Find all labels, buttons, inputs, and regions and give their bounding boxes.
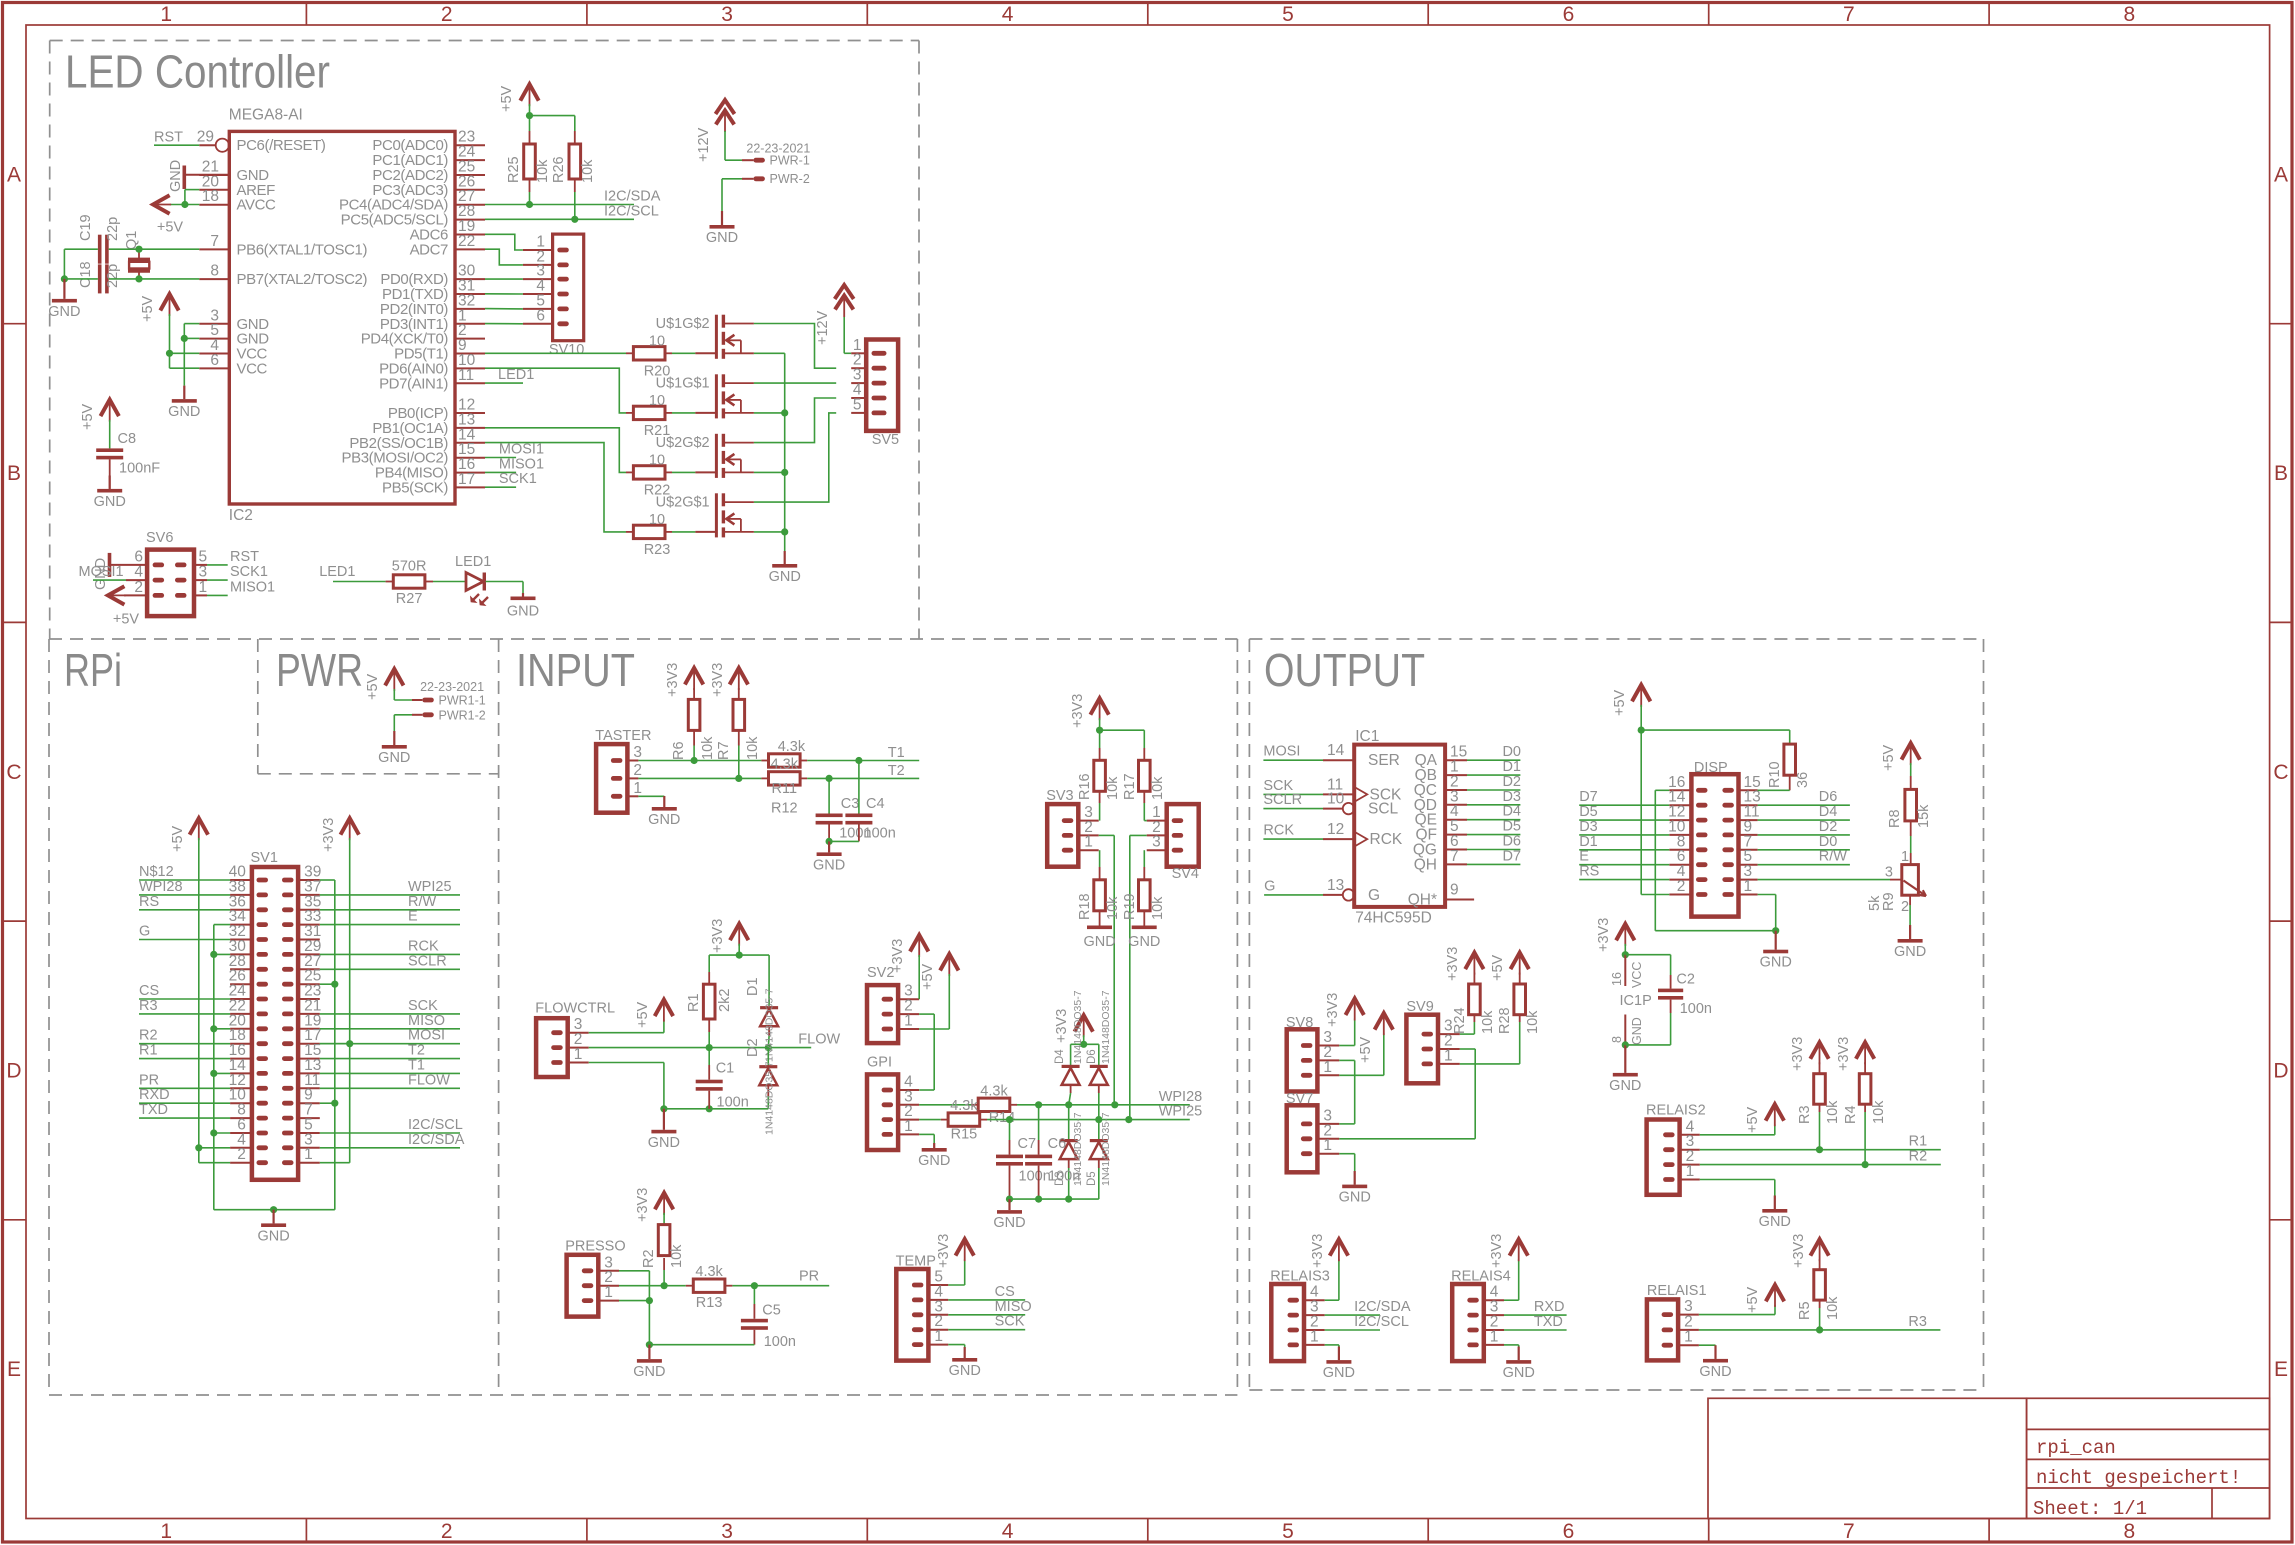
svg-text:1: 1 [160,3,172,26]
svg-text:MISO1: MISO1 [230,580,275,596]
svg-text:+5V: +5V [1490,954,1506,981]
svg-text:E: E [7,1358,21,1381]
svg-text:4.3k: 4.3k [778,739,806,755]
svg-text:GND: GND [648,1135,680,1151]
svg-text:C19: C19 [78,214,94,241]
svg-text:+5V: +5V [80,403,96,430]
svg-text:PB6(XTAL1/TOSC1): PB6(XTAL1/TOSC1) [237,241,368,258]
svg-text:1: 1 [1684,1329,1693,1346]
svg-text:R18: R18 [1077,893,1093,920]
svg-text:11: 11 [458,367,474,384]
svg-text:I2C/SDA: I2C/SDA [408,1132,465,1148]
svg-text:R25: R25 [506,156,522,183]
svg-text:12: 12 [1327,821,1344,838]
svg-text:14: 14 [1327,742,1345,759]
svg-text:+3V3: +3V3 [1054,1009,1070,1043]
svg-text:10k: 10k [1825,1296,1841,1320]
svg-text:SCK1: SCK1 [499,471,537,487]
svg-text:22p: 22p [105,264,121,288]
svg-text:GND: GND [507,604,539,620]
svg-text:R2: R2 [1909,1149,1928,1165]
svg-text:G: G [1264,878,1275,894]
svg-text:SV1: SV1 [251,850,278,866]
svg-text:R1: R1 [686,993,702,1012]
svg-text:+3V3: +3V3 [1325,993,1341,1027]
svg-text:SCK1: SCK1 [230,564,268,580]
svg-text:SV7: SV7 [1286,1091,1313,1107]
svg-text:G: G [139,924,150,940]
svg-text:PWR1-1: PWR1-1 [439,694,486,708]
svg-text:FLOW: FLOW [408,1072,450,1088]
svg-text:Q1: Q1 [124,231,140,250]
svg-text:1: 1 [1310,1328,1319,1345]
svg-text:SV9: SV9 [1406,999,1433,1015]
svg-text:R12: R12 [771,800,798,816]
svg-text:R3: R3 [1908,1314,1927,1330]
svg-text:+5V: +5V [920,963,936,990]
svg-text:22-23-2021: 22-23-2021 [420,680,484,694]
svg-text:2: 2 [633,762,642,779]
svg-text:10k: 10k [669,1244,685,1268]
svg-text:GND: GND [257,1228,289,1244]
svg-text:RPi: RPi [64,644,122,696]
svg-text:10: 10 [649,393,665,409]
svg-text:1N4148DO35-7: 1N4148DO35-7 [1100,1112,1112,1186]
svg-text:10: 10 [649,512,665,528]
svg-text:2: 2 [441,1520,453,1543]
svg-text:10: 10 [649,334,665,350]
svg-text:100n: 100n [864,825,896,841]
svg-text:+5V: +5V [1358,1036,1374,1063]
svg-text:+5V: +5V [365,673,381,700]
svg-text:GND: GND [1083,934,1115,950]
svg-text:IC1: IC1 [1355,728,1379,745]
svg-text:1N4148DO35-7: 1N4148DO35-7 [764,988,776,1062]
svg-text:1: 1 [160,1520,172,1543]
svg-text:1: 1 [934,1328,943,1345]
svg-text:R2: R2 [641,1249,657,1268]
svg-text:G: G [1368,887,1380,904]
svg-text:R15: R15 [951,1127,978,1143]
svg-text:CS: CS [995,1284,1015,1300]
svg-text:GND: GND [1609,1078,1641,1094]
svg-text:T2: T2 [408,1043,425,1059]
svg-text:+3V3: +3V3 [1836,1037,1852,1071]
svg-text:1: 1 [1686,1163,1695,1180]
svg-text:SV6: SV6 [146,530,173,546]
svg-text:MOSI: MOSI [408,1028,445,1044]
svg-text:R1: R1 [139,1043,158,1059]
svg-text:C3: C3 [841,796,860,812]
svg-text:D1: D1 [1502,759,1521,775]
svg-text:PR: PR [139,1072,159,1088]
svg-text:+3V3: +3V3 [1070,694,1086,728]
svg-text:3: 3 [721,3,733,26]
svg-text:10k: 10k [700,736,716,760]
svg-text:U$2G$1: U$2G$1 [656,495,710,511]
svg-text:R3: R3 [1797,1105,1813,1124]
svg-text:GND: GND [706,230,738,246]
svg-text:GND: GND [1630,1017,1644,1045]
svg-text:N$12: N$12 [139,864,174,880]
svg-text:100n: 100n [1019,1169,1051,1185]
svg-text:E: E [1579,849,1589,865]
svg-text:4: 4 [1002,1520,1014,1543]
svg-text:WPI25: WPI25 [1159,1104,1203,1120]
svg-text:R/W: R/W [1819,849,1848,865]
svg-text:MOSI1: MOSI1 [79,564,124,580]
svg-text:GND: GND [1323,1365,1355,1381]
svg-text:+5V: +5V [113,612,140,628]
svg-text:D4: D4 [1054,1049,1066,1064]
svg-text:+3V3: +3V3 [635,1188,651,1222]
svg-text:1: 1 [574,1046,583,1063]
svg-text:RELAIS4: RELAIS4 [1451,1269,1511,1285]
svg-text:R11: R11 [772,781,798,797]
svg-text:PC6(/RESET): PC6(/RESET) [237,137,326,154]
svg-text:D7: D7 [1502,848,1521,864]
svg-text:+5V: +5V [140,295,156,322]
svg-text:nicht gespeichert!: nicht gespeichert! [2036,1467,2241,1489]
svg-text:CS: CS [139,983,159,999]
svg-text:I2C/SDA: I2C/SDA [1354,1299,1411,1315]
svg-text:R17: R17 [1122,773,1138,800]
svg-text:D5: D5 [1502,819,1521,835]
svg-text:PWR: PWR [276,644,363,696]
svg-text:PRESSO: PRESSO [565,1239,625,1255]
svg-text:E: E [2274,1358,2288,1381]
svg-text:10k: 10k [535,159,551,183]
svg-text:1: 1 [904,1013,913,1030]
svg-text:D4: D4 [1502,804,1521,820]
svg-text:RXD: RXD [139,1087,170,1103]
svg-text:+3V3: +3V3 [710,663,726,697]
svg-text:5: 5 [1282,1520,1294,1543]
svg-text:I2C/SCL: I2C/SCL [604,204,659,220]
svg-text:PR: PR [799,1269,819,1285]
svg-text:R9: R9 [1881,892,1897,911]
svg-text:R7: R7 [716,741,732,760]
svg-text:RELAIS1: RELAIS1 [1647,1283,1707,1299]
svg-text:C1: C1 [716,1060,735,1076]
svg-text:2k2: 2k2 [717,989,733,1012]
svg-text:I2C/SCL: I2C/SCL [1354,1314,1409,1330]
svg-text:SCLR: SCLR [408,953,447,969]
svg-text:6: 6 [1563,1520,1575,1543]
svg-text:1N4148DO35-7: 1N4148DO35-7 [1072,990,1084,1064]
svg-text:D1: D1 [1579,834,1598,850]
svg-text:15k: 15k [1916,804,1932,828]
svg-text:17: 17 [458,471,475,488]
svg-text:GND: GND [648,812,680,828]
svg-text:10k: 10k [580,159,596,183]
svg-text:2: 2 [134,579,143,596]
svg-text:C4: C4 [866,796,885,812]
svg-text:A: A [2274,163,2288,186]
svg-text:MISO: MISO [408,1013,445,1029]
svg-text:22: 22 [458,233,475,250]
svg-text:570R: 570R [392,558,427,574]
svg-text:D5: D5 [1579,804,1598,820]
svg-text:+12V: +12V [696,127,712,162]
svg-text:T2: T2 [888,763,905,779]
svg-text:T1: T1 [888,745,905,761]
svg-text:MISO: MISO [995,1299,1032,1315]
svg-text:R27: R27 [396,591,423,607]
svg-text:PWR1-2: PWR1-2 [439,708,486,722]
svg-text:LED1: LED1 [319,564,355,580]
svg-text:R28: R28 [1497,1007,1513,1034]
svg-text:R24: R24 [1452,1007,1468,1034]
svg-text:WPI28: WPI28 [1159,1089,1203,1105]
svg-text:C7: C7 [1018,1136,1037,1152]
svg-text:OUTPUT: OUTPUT [1264,644,1425,696]
svg-text:MISO1: MISO1 [499,456,544,472]
svg-text:1: 1 [1323,1059,1332,1076]
svg-text:PB5(SCK): PB5(SCK) [382,479,448,496]
svg-text:SV5: SV5 [872,432,899,448]
svg-text:IC2: IC2 [229,507,253,524]
svg-text:3: 3 [633,744,642,761]
svg-text:R4: R4 [1843,1105,1859,1124]
svg-text:10: 10 [649,453,665,469]
svg-text:10k: 10k [1105,896,1121,920]
svg-text:8: 8 [1610,1036,1624,1043]
svg-text:D2: D2 [1502,774,1521,790]
svg-text:GND: GND [1894,944,1926,960]
svg-text:+5V: +5V [635,1001,651,1028]
svg-text:RXD: RXD [1534,1299,1565,1315]
svg-text:C18: C18 [78,261,94,288]
svg-text:PD7(AIN1): PD7(AIN1) [379,375,448,392]
svg-text:+3V3: +3V3 [1310,1234,1326,1268]
svg-text:GND: GND [94,494,126,510]
svg-text:RELAIS3: RELAIS3 [1270,1269,1330,1285]
svg-text:10k: 10k [1825,1100,1841,1124]
svg-text:2: 2 [1901,899,1909,915]
svg-text:FLOW: FLOW [798,1032,840,1048]
svg-text:R3: R3 [139,998,158,1014]
svg-text:GND: GND [378,750,410,766]
svg-text:T1: T1 [408,1057,425,1073]
svg-text:TXD: TXD [139,1102,168,1118]
svg-text:4.3k: 4.3k [771,757,799,773]
svg-text:GND: GND [1759,1214,1791,1230]
svg-text:6: 6 [1563,3,1575,26]
svg-text:7: 7 [210,233,219,250]
svg-text:R13: R13 [696,1295,723,1311]
svg-text:D2: D2 [1819,819,1838,835]
svg-text:DISP: DISP [1694,760,1728,776]
svg-text:+5V: +5V [1745,1286,1761,1313]
svg-text:RS: RS [139,894,159,910]
svg-text:6: 6 [536,307,545,324]
svg-text:+5V: +5V [170,825,186,852]
svg-text:LED1: LED1 [455,554,491,570]
svg-text:D: D [6,1060,21,1083]
svg-text:GND: GND [949,1363,981,1379]
svg-text:D3: D3 [1502,789,1521,805]
svg-text:SV4: SV4 [1172,866,1199,882]
svg-text:TASTER: TASTER [595,728,651,744]
svg-text:+3V3: +3V3 [665,663,681,697]
svg-text:U$2G$2: U$2G$2 [656,435,710,451]
svg-text:I2C/SDA: I2C/SDA [604,189,661,205]
svg-text:GND: GND [918,1153,950,1169]
svg-text:+3V3: +3V3 [1445,947,1461,981]
svg-text:MOSI1: MOSI1 [499,442,544,458]
svg-text:100n: 100n [1048,1169,1080,1185]
svg-text:TXD: TXD [1534,1314,1563,1330]
svg-text:1: 1 [1490,1328,1499,1345]
svg-text:GND: GND [633,1364,665,1380]
svg-text:6: 6 [210,352,219,369]
svg-text:SCL: SCL [1368,801,1399,818]
svg-text:10k: 10k [1871,1100,1887,1124]
svg-text:U$1G$1: U$1G$1 [656,376,710,392]
svg-text:4: 4 [1002,3,1014,26]
svg-text:1: 1 [604,1284,613,1301]
svg-text:+3V3: +3V3 [1790,1037,1806,1071]
svg-text:1: 1 [199,579,208,596]
svg-text:GND: GND [813,857,845,873]
svg-text:3: 3 [1152,834,1161,851]
svg-text:3: 3 [721,1520,733,1543]
svg-text:2: 2 [441,3,453,26]
svg-text:ADC7: ADC7 [410,241,448,258]
svg-text:R/W: R/W [408,894,437,910]
svg-text:8: 8 [2124,3,2136,26]
svg-text:WPI25: WPI25 [408,879,452,895]
svg-text:RST: RST [154,130,183,146]
svg-text:+3V3: +3V3 [321,818,337,852]
svg-text:E: E [408,909,418,925]
svg-text:C5: C5 [762,1303,781,1319]
svg-text:10: 10 [1327,791,1345,808]
svg-text:3: 3 [1885,865,1893,881]
svg-text:RCK: RCK [1263,823,1294,839]
svg-text:5: 5 [853,396,862,413]
svg-text:+3V3: +3V3 [1489,1234,1505,1268]
svg-text:GND: GND [48,304,80,320]
svg-text:TEMP: TEMP [896,1254,936,1270]
svg-text:C8: C8 [118,431,137,447]
svg-text:10k: 10k [1480,1010,1496,1034]
svg-text:GND: GND [168,160,184,192]
svg-text:10k: 10k [1150,896,1166,920]
svg-text:5: 5 [1282,3,1294,26]
svg-text:Sheet: 1/1: Sheet: 1/1 [2033,1498,2147,1520]
svg-text:36: 36 [1795,772,1811,788]
svg-text:1N4148DO35-7: 1N4148DO35-7 [764,1061,776,1135]
svg-text:PWR-1: PWR-1 [770,154,810,168]
svg-text:7: 7 [1843,3,1855,26]
svg-text:4.3k: 4.3k [695,1264,723,1280]
svg-text:R5: R5 [1797,1301,1813,1320]
svg-text:WPI28: WPI28 [139,879,183,895]
svg-text:4.3k: 4.3k [950,1098,978,1114]
svg-text:SV10: SV10 [549,342,584,358]
svg-text:GND: GND [769,569,801,585]
svg-text:D3: D3 [1579,819,1598,835]
svg-text:GND: GND [1760,955,1792,971]
svg-text:LED Controller: LED Controller [65,46,330,98]
svg-text:C2: C2 [1676,971,1695,987]
svg-text:PWR-2: PWR-2 [770,172,810,186]
svg-text:+3V3: +3V3 [890,939,906,973]
svg-text:AVCC: AVCC [237,197,277,214]
svg-text:1: 1 [1323,1137,1332,1154]
svg-text:+3V3: +3V3 [1791,1234,1807,1268]
svg-text:+12V: +12V [815,310,831,345]
svg-text:B: B [7,462,21,485]
svg-text:1: 1 [1744,878,1753,895]
svg-text:GND: GND [1128,934,1160,950]
svg-text:PB7(XTAL2/TOSC2): PB7(XTAL2/TOSC2) [237,271,368,288]
svg-text:10k: 10k [1105,776,1121,800]
svg-text:16: 16 [1610,972,1624,986]
svg-text:1: 1 [1901,849,1909,865]
svg-text:SV3: SV3 [1046,788,1073,804]
svg-text:VCC: VCC [237,360,268,377]
svg-text:FLOWCTRL: FLOWCTRL [535,1001,615,1017]
svg-text:100n: 100n [764,1334,796,1350]
svg-text:18: 18 [202,188,219,205]
svg-text:RST: RST [230,549,259,565]
svg-text:SER: SER [1368,752,1400,769]
svg-text:D: D [2273,1060,2288,1083]
svg-text:D0: D0 [1819,834,1838,850]
svg-text:SCLR: SCLR [1263,792,1302,808]
svg-text:QH: QH [1414,856,1437,873]
svg-text:GND: GND [1503,1365,1535,1381]
svg-text:9: 9 [1450,882,1459,899]
svg-text:GND: GND [1699,1364,1731,1380]
svg-text:GPI: GPI [867,1054,892,1070]
svg-text:100nF: 100nF [119,461,160,477]
svg-text:R1: R1 [1909,1134,1928,1150]
svg-text:QH*: QH* [1408,892,1437,909]
svg-text:7: 7 [1843,1520,1855,1543]
svg-text:D6: D6 [1819,789,1838,805]
svg-text:D6: D6 [1086,1049,1098,1064]
svg-text:C: C [6,761,21,784]
svg-text:GND: GND [993,1215,1025,1231]
svg-text:22p: 22p [105,217,121,241]
svg-text:IC1P: IC1P [1620,993,1652,1009]
svg-text:R23: R23 [644,542,671,558]
svg-text:R16: R16 [1077,773,1093,800]
svg-text:2: 2 [237,1146,246,1163]
svg-text:8: 8 [2124,1520,2136,1543]
svg-text:D4: D4 [1819,804,1838,820]
svg-text:INPUT: INPUT [516,644,635,696]
svg-text:SV8: SV8 [1286,1015,1313,1031]
svg-text:MOSI: MOSI [1263,744,1300,760]
svg-text:I2C/SCL: I2C/SCL [408,1117,463,1133]
svg-text:C6: C6 [1048,1136,1067,1152]
svg-text:D7: D7 [1579,789,1598,805]
svg-text:SCK: SCK [408,998,438,1014]
svg-text:GND: GND [168,404,200,420]
svg-text:SCK: SCK [995,1314,1025,1330]
svg-text:1: 1 [633,780,642,797]
svg-text:RCK: RCK [408,938,439,954]
svg-text:+5V: +5V [1745,1106,1761,1133]
svg-text:D1: D1 [745,977,761,996]
svg-text:1: 1 [304,1146,313,1163]
svg-text:+3V3: +3V3 [936,1234,952,1268]
